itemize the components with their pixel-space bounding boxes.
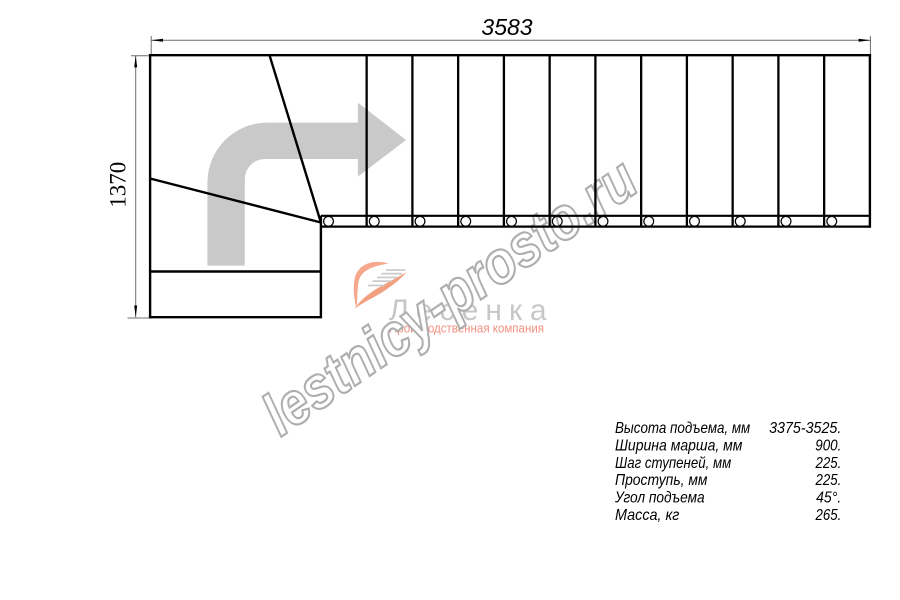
svg-text:Ширина марша, мм: Ширина марша, мм <box>615 437 743 454</box>
svg-text:Угол подъема: Угол подъема <box>614 490 705 507</box>
svg-text:Шаг ступеней, мм: Шаг ступеней, мм <box>615 455 731 472</box>
svg-text:225.: 225. <box>815 472 842 489</box>
svg-text:1370: 1370 <box>105 162 130 208</box>
svg-text:3583: 3583 <box>481 14 532 40</box>
svg-text:265.: 265. <box>815 507 842 524</box>
svg-text:Проступь, мм: Проступь, мм <box>615 472 708 489</box>
svg-text:225.: 225. <box>815 455 842 472</box>
svg-text:Масса, кг: Масса, кг <box>615 507 680 524</box>
svg-text:900.: 900. <box>815 437 841 454</box>
svg-text:3375-3525.: 3375-3525. <box>769 420 841 437</box>
svg-text:45°.: 45°. <box>816 490 841 507</box>
svg-text:Высота подъема, мм: Высота подъема, мм <box>615 420 750 437</box>
